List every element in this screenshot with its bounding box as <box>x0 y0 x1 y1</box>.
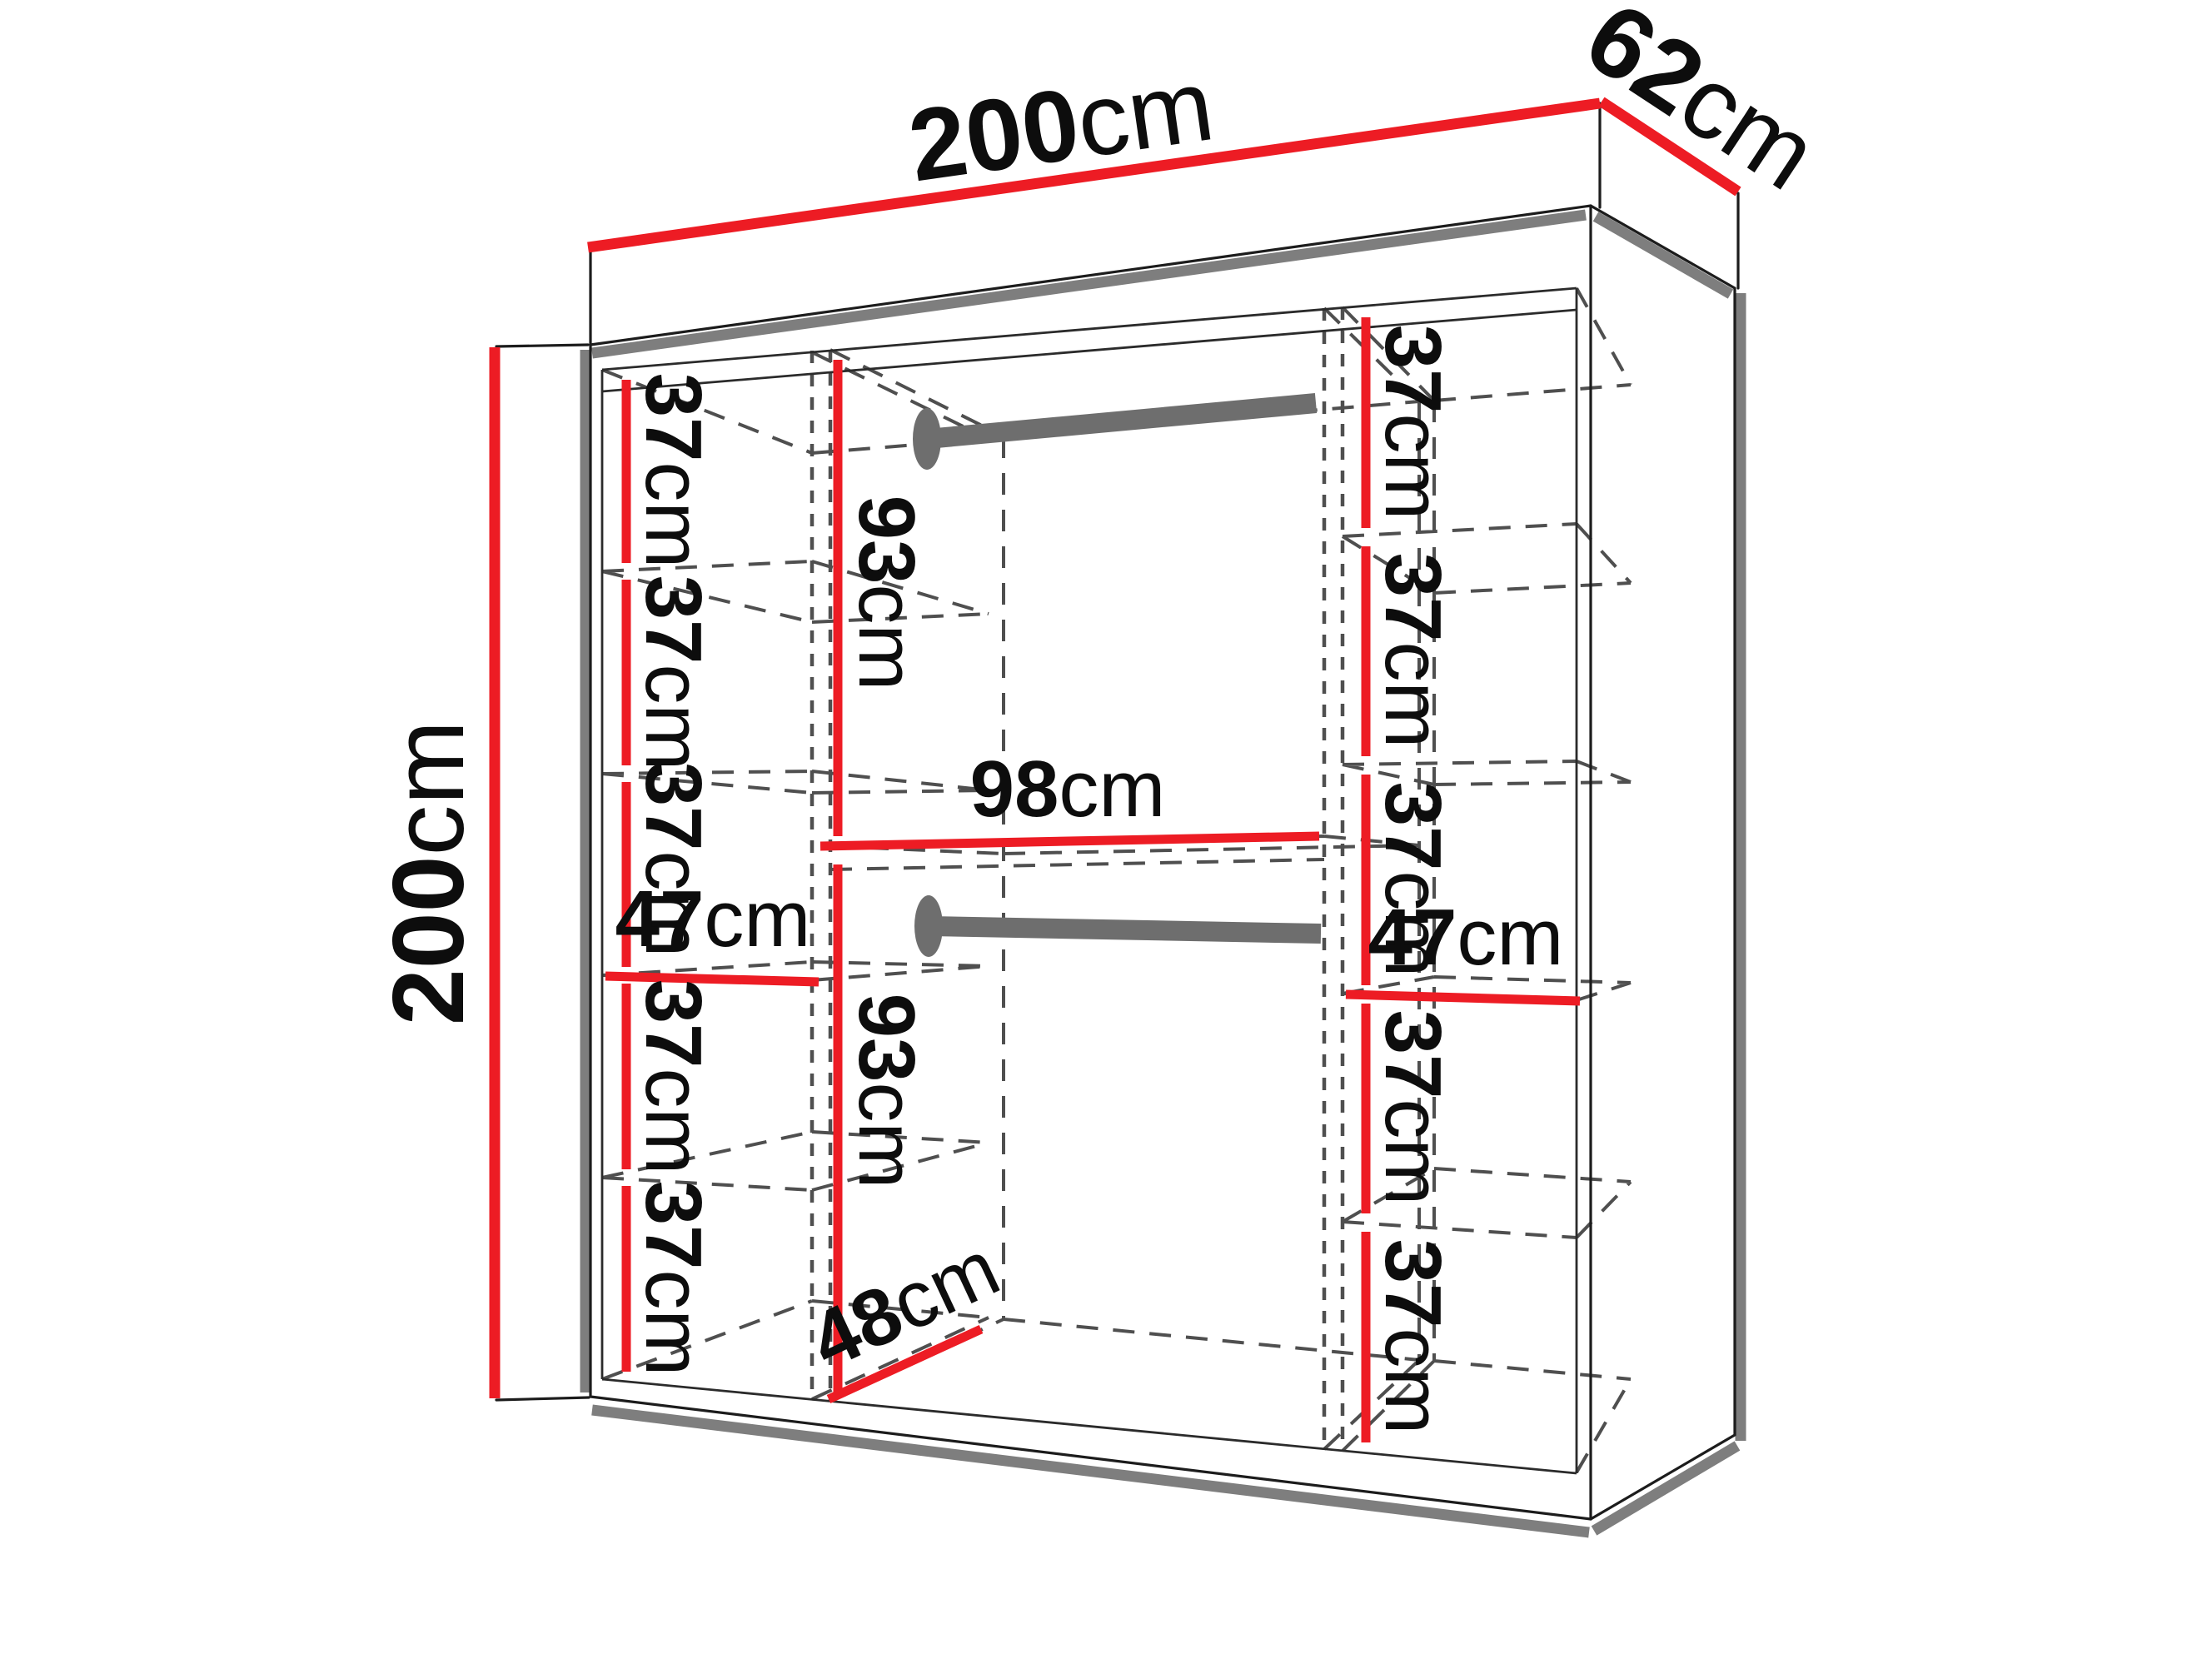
overall-height-label: 200cm <box>371 720 485 1025</box>
lower-rod-end-cap <box>914 895 943 957</box>
right-column-width-label: 47cm <box>1368 893 1564 982</box>
left-gap-label-2: 37cm <box>629 575 718 771</box>
right-gap-label-4: 37cm <box>1368 1010 1457 1206</box>
middle-lower-height-label: 93cm <box>842 994 931 1189</box>
right-gap-label-5: 37cm <box>1368 1239 1457 1435</box>
diagram-canvas: 200cm 62cm 200cm 37cm 37cm 37cm 47cm 37c… <box>0 0 2212 1659</box>
lower-hanging-rod <box>929 926 1321 934</box>
right-gap-label-2: 37cm <box>1368 553 1457 749</box>
middle-width-label: 98cm <box>970 745 1166 834</box>
left-gap-label-1: 37cm <box>629 373 718 569</box>
left-gap-label-4: 37cm <box>629 979 718 1175</box>
upper-rod-end-cap <box>913 408 941 470</box>
left-gap-label-5: 37cm <box>629 1181 718 1377</box>
middle-upper-height-label: 93cm <box>842 496 931 691</box>
left-column-width-label: 47cm <box>615 874 811 964</box>
wardrobe-dimension-diagram: 200cm 62cm 200cm 37cm 37cm 37cm 47cm 37c… <box>0 0 2212 1659</box>
right-gap-label-1: 37cm <box>1368 325 1457 521</box>
